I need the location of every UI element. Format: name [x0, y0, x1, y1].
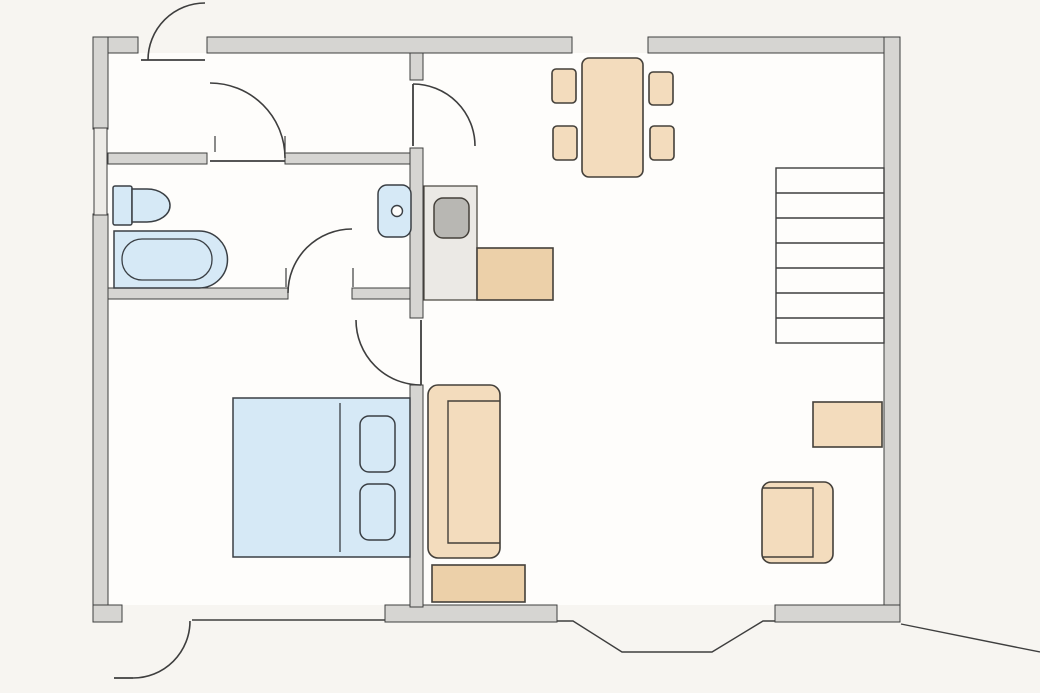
left-wall-upper: [93, 37, 108, 129]
dining-chair: [553, 126, 577, 160]
dining-chair: [649, 72, 673, 105]
staircase-outline: [776, 168, 884, 343]
washbasin-drain: [392, 206, 403, 217]
hallway-wall-right: [285, 153, 412, 164]
floor-plan-canvas: [0, 0, 1040, 693]
exterior-terrace-line: [901, 624, 1040, 652]
stove: [434, 198, 469, 238]
pillow: [360, 484, 395, 540]
left-wall-window: [94, 128, 107, 215]
bottom-wall-mid-segment: [385, 605, 557, 622]
armchair: [762, 482, 833, 563]
back-door-arc: [148, 3, 205, 60]
dining-chair: [650, 126, 674, 160]
bottom-wall-right-segment: [775, 605, 900, 622]
divider-wall-top-stub: [410, 53, 423, 80]
left-wall-lower: [93, 214, 108, 622]
dining-chair: [552, 69, 576, 103]
right-wall: [884, 37, 900, 622]
divider-wall-lower: [410, 385, 423, 607]
back-door: [141, 3, 205, 60]
top-wall-right-segment: [648, 37, 900, 53]
sofa: [428, 385, 500, 558]
toilet-bowl: [132, 189, 170, 222]
top-wall-mid-segment: [207, 37, 572, 53]
bottom-bay-window: [557, 621, 775, 652]
kitchen-counter: [477, 248, 553, 300]
pillow: [360, 416, 395, 472]
side-table: [813, 402, 882, 447]
bedroom-furniture: [233, 398, 410, 557]
front-door-arc: [133, 621, 190, 678]
divider-wall-middle: [410, 148, 423, 318]
toilet-tank: [113, 186, 132, 225]
staircase: [776, 168, 884, 343]
bathroom-wall-left: [108, 288, 288, 299]
dining-table: [582, 58, 643, 177]
coffee-table: [432, 565, 525, 602]
front-door: [114, 621, 190, 678]
hallway-wall-left: [108, 153, 207, 164]
bottom-wall-left-stub: [93, 605, 122, 622]
